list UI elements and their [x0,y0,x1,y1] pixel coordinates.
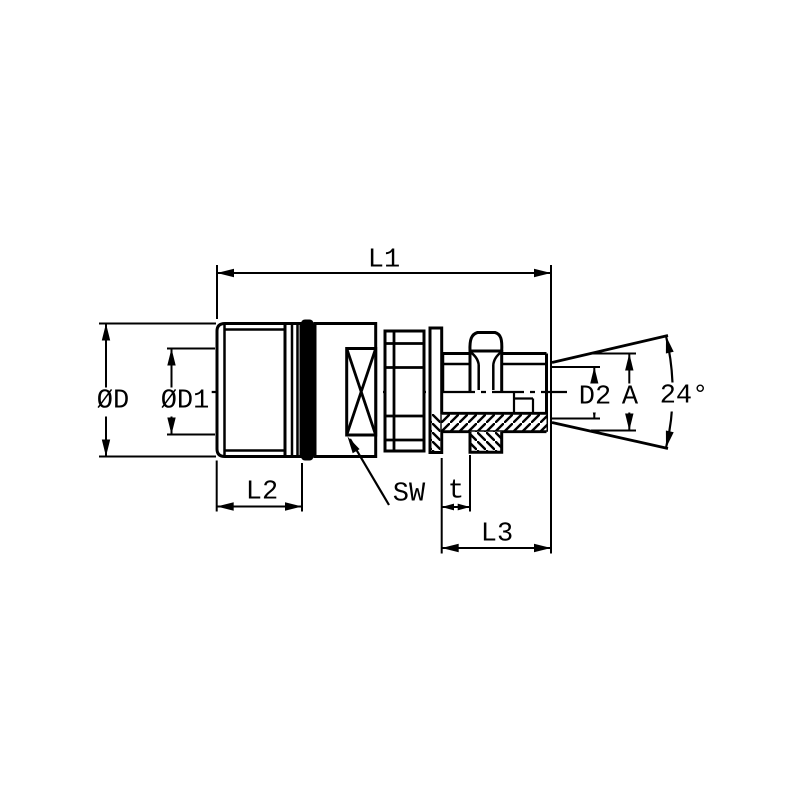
label-od: ØD [95,388,131,417]
hex-top-profile [470,333,502,352]
washer-section-hatch [432,414,441,451]
arc-arrow-top [666,336,674,354]
od-arrow-top [102,324,110,341]
label-od1: ØD1 [159,388,212,417]
label-angle: 24° [658,383,711,412]
label-a: A [620,384,640,413]
od1-arrow-top [167,349,175,366]
label-l3: L3 [481,522,513,549]
cone-line-top [552,336,668,363]
label-sw: SW [391,481,427,510]
washer-flange [430,328,442,453]
l3-arrow-left [442,544,459,552]
thread-section-hatch [442,413,547,431]
o-ring-seal [301,320,314,461]
union-nut [385,331,424,451]
label-d2: D2 [577,384,613,413]
l2-arrow-right [285,502,302,510]
cone-line-bottom [552,423,668,449]
sw-flats-box [347,349,376,436]
coupling-sleeve [217,324,301,457]
a-arrow-top [625,354,633,371]
label-l2: L2 [246,480,278,507]
hex-corner-lines [479,365,494,391]
l3-arrow-right [534,544,551,552]
l1-arrow-right [534,269,551,277]
d2-arrow-top [590,367,598,384]
l1-arrow-left [217,269,234,277]
l2-arrow-left [217,502,234,510]
hex-section-hatch [470,432,502,453]
label-t: t [448,479,464,506]
a-arrow-bottom [625,414,633,431]
coupling-body [315,324,376,457]
label-l1: L1 [368,248,400,275]
bore-step-lines [514,392,533,413]
od1-arrow-bottom [167,418,175,435]
od-arrow-bottom [102,440,110,457]
drawing-canvas: L1 ØD ØD1 L2 SW t L3 D2 A 24° [0,0,800,800]
arc-arrow-bottom [666,431,674,449]
hex-chamfer-arcs [471,352,501,365]
